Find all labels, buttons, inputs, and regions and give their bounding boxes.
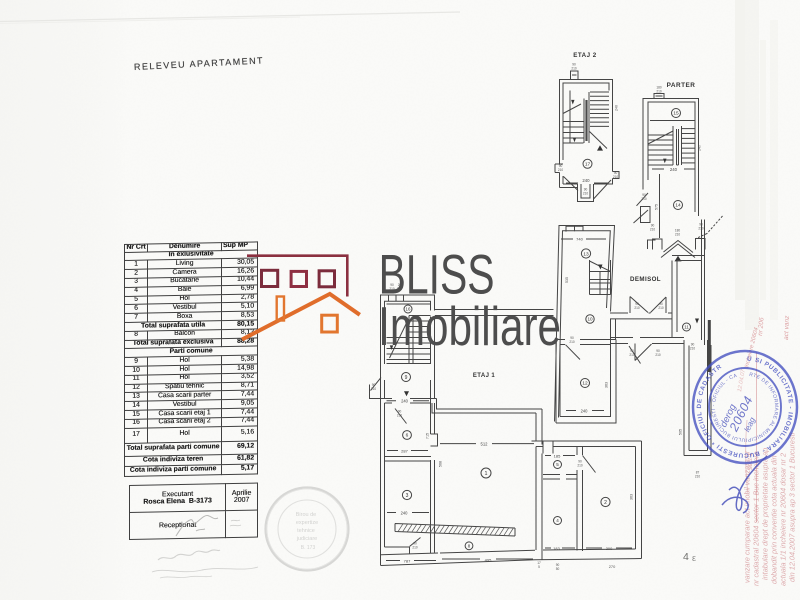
svg-text:tehnice: tehnice xyxy=(297,528,315,534)
svg-text:expertize: expertize xyxy=(296,520,318,526)
svg-text:judiciare: judiciare xyxy=(296,536,317,542)
svg-text:intabulare drept de proprietat: intabulare drept de proprietate asupra a… xyxy=(761,448,770,580)
svg-text:nr 206: nr 206 xyxy=(757,317,766,336)
svg-text:din 12.04.2007 asupra ap 3 sec: din 12.04.2007 asupra ap 3 sector 1 Bucu… xyxy=(788,432,797,582)
svg-text:actuala 1/1 incheiere nr 20604: actuala 1/1 incheiere nr 20604 dosar nr … xyxy=(779,453,788,586)
svg-text:4: 4 xyxy=(683,551,689,563)
svg-text:12.04.07: 12.04.07 xyxy=(737,368,747,392)
svg-text:Birou de: Birou de xyxy=(296,512,317,518)
svg-text:act vanz: act vanz xyxy=(783,315,791,340)
svg-text:dobandit prin conventie cota a: dobandit prin conventie cota actuala din xyxy=(770,455,779,584)
svg-text:B. 173: B. 173 xyxy=(301,545,316,551)
svg-text:ε: ε xyxy=(692,553,696,563)
